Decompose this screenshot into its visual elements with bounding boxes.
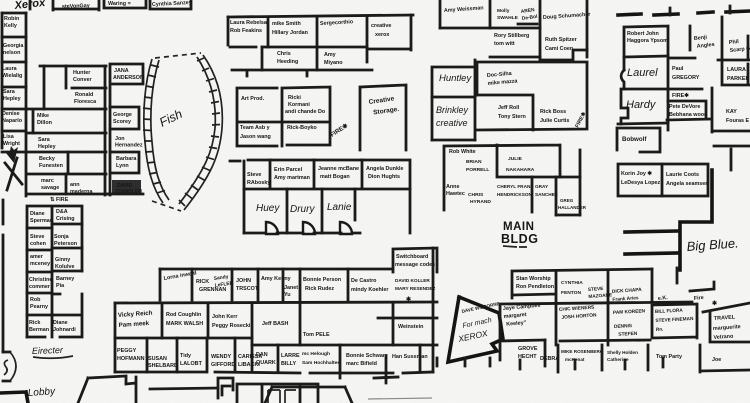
svg-text:Lanie: Lanie	[327, 202, 352, 213]
svg-text:Fire: Fire	[694, 295, 704, 302]
svg-text:Eirecter: Eirecter	[32, 345, 64, 356]
svg-text:Rick-Boyko: Rick-Boyko	[287, 125, 317, 131]
svg-text:BLDG: BLDG	[501, 232, 538, 246]
svg-text:Rob White: Rob White	[449, 149, 476, 155]
svg-text:Huey: Huey	[256, 203, 280, 214]
svg-text:Amy Kenny: Amy Kenny	[261, 276, 291, 282]
svg-text:DEBRA: DEBRA	[540, 356, 559, 362]
svg-text:Drury: Drury	[290, 204, 315, 215]
svg-text:DeniseNaparlo: DeniseNaparlo	[2, 111, 23, 124]
svg-text:Tom Party: Tom Party	[656, 354, 682, 360]
svg-text:Hardy: Hardy	[626, 99, 657, 111]
svg-text:Joe: Joe	[712, 357, 721, 363]
svg-text:Jeff BASH: Jeff BASH	[262, 321, 288, 327]
svg-text:FIRE✱: FIRE✱	[672, 93, 689, 99]
svg-text:Art Prod.: Art Prod.	[241, 96, 265, 102]
svg-text:GeorgeScorey: GeorgeScorey	[113, 112, 132, 125]
svg-text:Huntley: Huntley	[439, 73, 472, 84]
svg-text:steVonGay: steVonGay	[62, 3, 90, 10]
svg-text:Han Sussman: Han Sussman	[392, 354, 428, 360]
svg-text:Lobby: Lobby	[27, 386, 56, 399]
svg-text:Bobwolf: Bobwolf	[622, 136, 647, 143]
svg-text:Waring =: Waring =	[108, 1, 131, 7]
svg-text:Christinecommer: Christinecommer	[29, 277, 52, 290]
svg-text:Laurel: Laurel	[627, 67, 658, 79]
svg-text:HunterConver: HunterConver	[73, 70, 92, 83]
svg-text:Weinstein: Weinstein	[398, 324, 423, 330]
svg-text:⇅ FIRE: ⇅ FIRE	[50, 196, 69, 203]
svg-text:✱: ✱	[712, 300, 717, 307]
svg-text:Stevecohen: Stevecohen	[30, 234, 46, 247]
svg-text:Tom PELE: Tom PELE	[303, 332, 330, 338]
